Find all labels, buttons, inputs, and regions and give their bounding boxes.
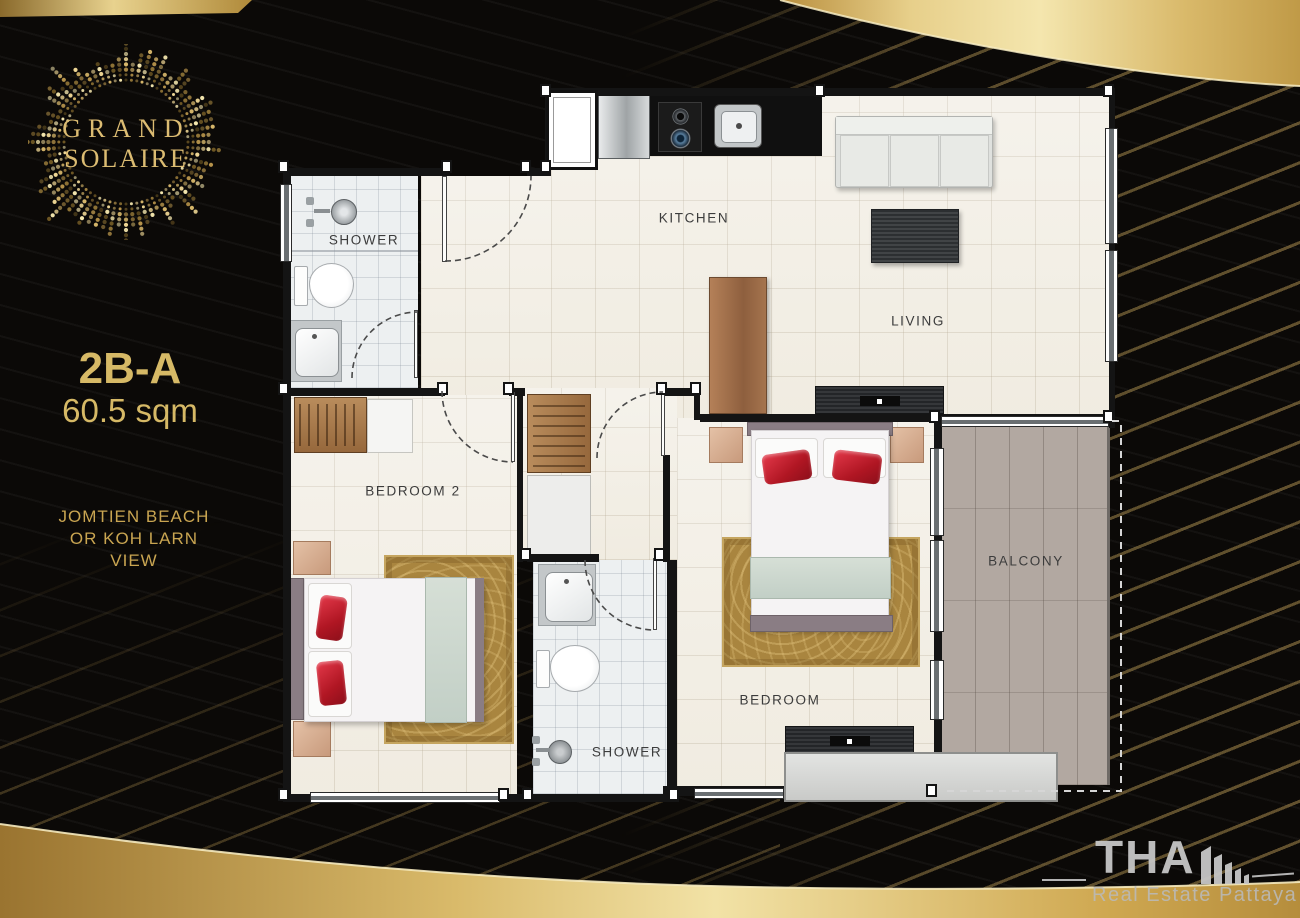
- label-balcony: BALCONY: [988, 554, 1064, 569]
- watermark-brand-row: THA: [1095, 830, 1251, 884]
- balcony-dashed-outline: [941, 421, 1121, 791]
- view-line-2: OR KOH LARN: [25, 528, 243, 550]
- watermark-rule-right: [1252, 873, 1294, 878]
- watermark-tagline: Real Estate Pattaya: [1092, 884, 1297, 907]
- building-skyline-icon: [1199, 842, 1251, 884]
- label-bedroom2: BEDROOM 2: [365, 484, 460, 499]
- label-shower-bottom: SHOWER: [592, 745, 662, 760]
- view-line-1: JOMTIEN BEACH: [25, 506, 243, 528]
- logo-text-solaire: SOLAIRE: [28, 144, 224, 174]
- watermark-rule-left: [1042, 879, 1086, 881]
- unit-view-description: JOMTIEN BEACH OR KOH LARN VIEW: [25, 506, 243, 572]
- label-bedroom: BEDROOM: [740, 693, 821, 708]
- poster-canvas: GRAND SOLAIRE 2B-A 60.5 sqm JOMTIEN BEAC…: [0, 0, 1300, 918]
- logo-text-grand: GRAND: [28, 114, 224, 144]
- label-shower-top: SHOWER: [329, 233, 399, 248]
- label-kitchen: KITCHEN: [659, 211, 729, 226]
- unit-code: 2B-A: [55, 344, 205, 394]
- thai-real-estate-watermark: THA Real Estate Pattaya: [1042, 836, 1294, 912]
- view-line-3: VIEW: [25, 550, 243, 572]
- watermark-brand-text: THA: [1095, 830, 1196, 884]
- unit-area: 60.5 sqm: [40, 392, 220, 430]
- label-living: LIVING: [891, 314, 945, 329]
